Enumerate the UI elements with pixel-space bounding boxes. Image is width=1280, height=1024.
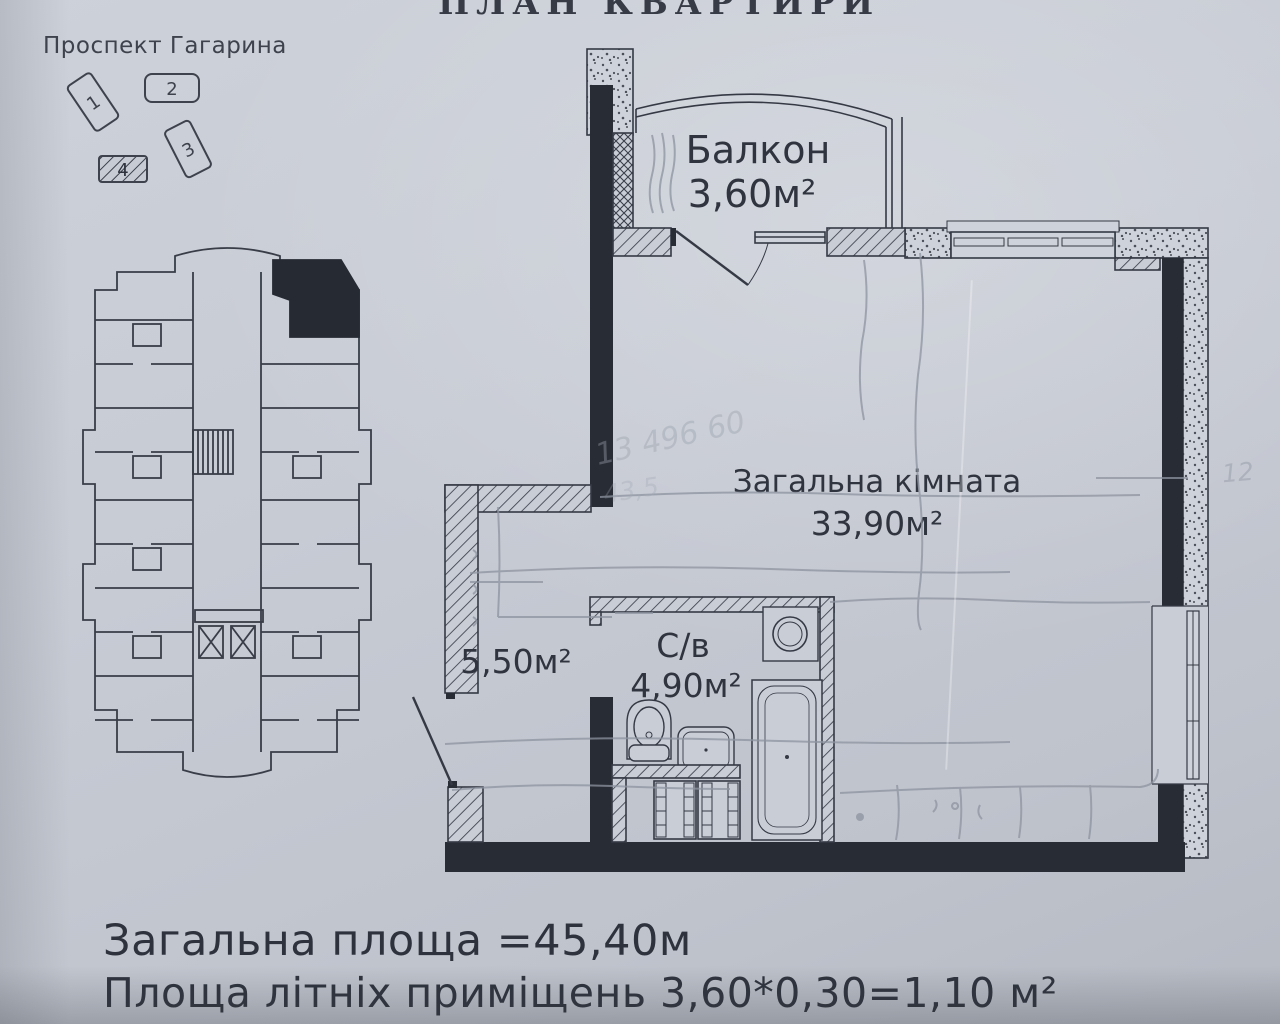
site-building-3-number: 3 bbox=[179, 138, 199, 162]
wall-balcony-bottom-left bbox=[613, 228, 671, 256]
wall-balcony-left bbox=[613, 133, 633, 231]
site-plan: 1 2 3 4 bbox=[20, 28, 280, 198]
wall-concrete-top-pier bbox=[905, 228, 951, 258]
balcony-window bbox=[755, 232, 825, 243]
toilet-icon bbox=[627, 700, 671, 761]
wall-bath-left-lower bbox=[590, 697, 613, 842]
stairs-icon bbox=[193, 430, 233, 474]
apartment-floor-plan: Балкон 3,60м² Загальна кімната 33,90м² 5… bbox=[440, 45, 1220, 895]
site-building-2-number: 2 bbox=[166, 79, 177, 100]
scanned-floor-plan-page: ПЛАН КВАРТИРИ Проспект Гагарина 1 2 3 bbox=[0, 0, 1280, 1024]
bathroom-label: С/в bbox=[656, 626, 710, 665]
wall-bottom bbox=[445, 842, 1185, 872]
site-building-1: 1 bbox=[66, 72, 119, 132]
bathroom-area: 4,90м² bbox=[630, 666, 742, 705]
balcony-area: 3,60м² bbox=[688, 172, 817, 216]
balcony-label: Балкон bbox=[686, 128, 831, 172]
elevator-shaft-icon bbox=[195, 610, 263, 658]
site-building-1-number: 1 bbox=[83, 91, 104, 115]
hall-area: 5,50м² bbox=[460, 642, 572, 681]
pencil-note-measure: 13 496 60 bbox=[592, 404, 749, 472]
site-building-4-number: 4 bbox=[117, 160, 128, 181]
bathtub-icon bbox=[752, 680, 822, 840]
wall-hall-left-lower bbox=[448, 787, 483, 842]
wall-hatch-under-corner bbox=[1115, 258, 1160, 270]
washing-machine-icon bbox=[763, 607, 818, 661]
right-window bbox=[1152, 606, 1208, 784]
page-title: ПЛАН КВАРТИРИ bbox=[438, 0, 852, 22]
pencil-note-right: 12 bbox=[1221, 457, 1255, 489]
highlighted-unit bbox=[273, 260, 359, 337]
wall-right-upper bbox=[1162, 258, 1183, 606]
summer-area-line: Площа літніх приміщень 3,60*0,30=1,10 м² bbox=[103, 969, 1058, 1017]
total-area-line: Загальна площа =45,40м bbox=[103, 916, 692, 966]
entrance-door-swing bbox=[413, 693, 457, 788]
wall-right-lower bbox=[1158, 784, 1183, 844]
site-building-2: 2 bbox=[145, 74, 199, 102]
site-building-3: 3 bbox=[164, 119, 213, 178]
wall-bath-top-return bbox=[590, 612, 601, 625]
living-room-area: 33,90м² bbox=[811, 504, 944, 543]
site-building-4-highlighted: 4 bbox=[99, 156, 147, 182]
wall-concrete-top-right bbox=[1115, 228, 1208, 258]
vent-shaft-icon bbox=[612, 765, 740, 842]
building-floor-plan bbox=[75, 232, 380, 782]
top-window bbox=[947, 221, 1119, 258]
wall-balcony-bottom-right bbox=[827, 228, 905, 256]
